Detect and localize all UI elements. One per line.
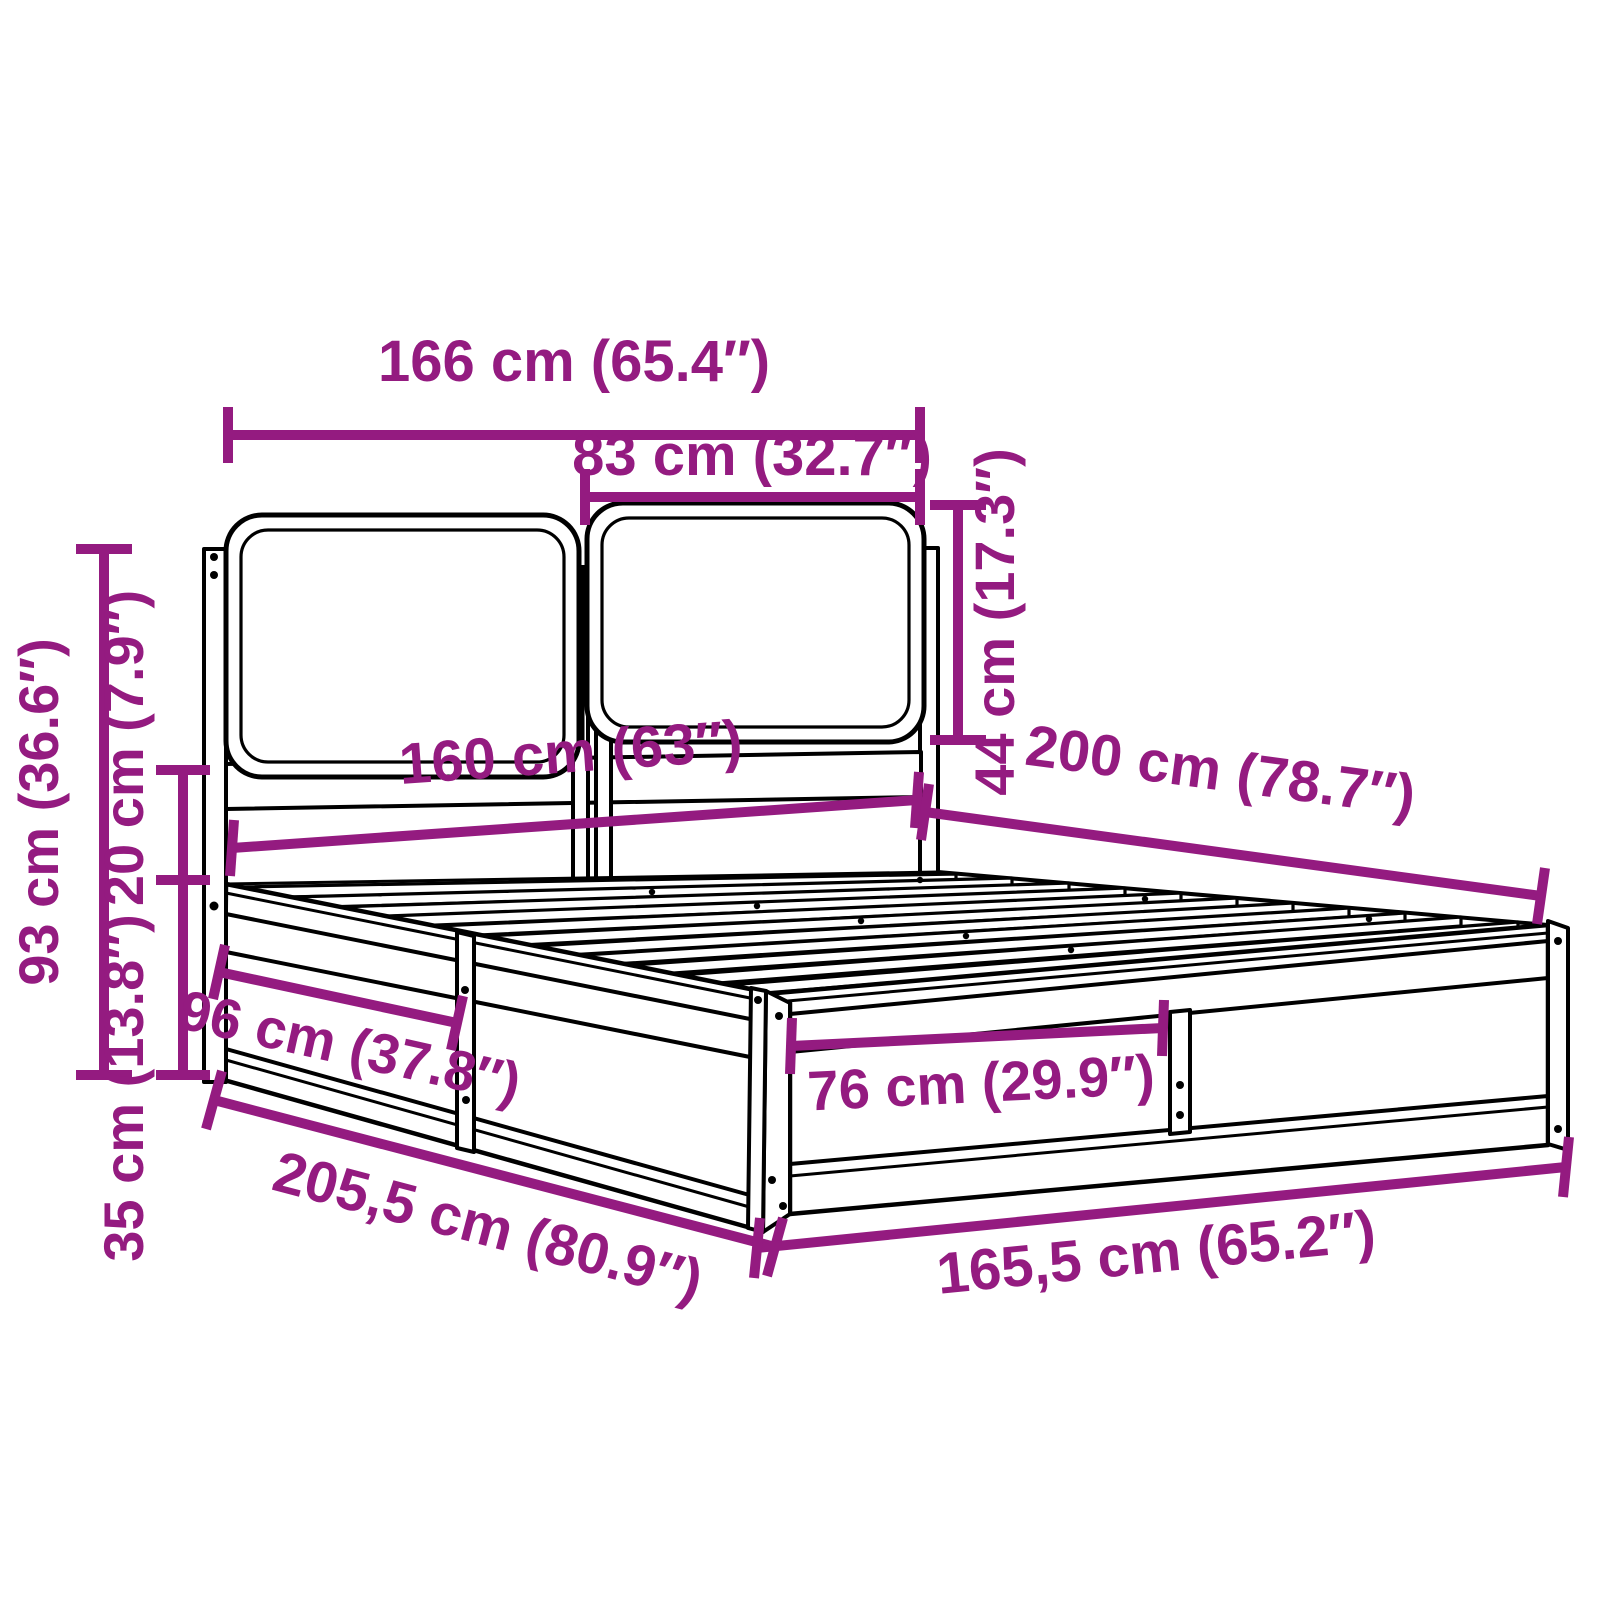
dim-headboard-width-label: 166 cm (65.4″) bbox=[378, 329, 770, 394]
diagram-canvas: 166 cm (65.4″) 83 cm (32.7″) 44 cm (17.3… bbox=[0, 0, 1600, 1600]
dim-base-height-label: 35 cm (13.8″) bbox=[92, 914, 155, 1261]
headboard-cushion-right bbox=[587, 503, 924, 742]
dim-cushion-height-label: 44 cm (17.3″) bbox=[963, 448, 1026, 795]
dim-headboard-height-label: 93 cm (36.6″) bbox=[7, 638, 70, 985]
dim-headboard-clearance-label: 20 cm (7.9″) bbox=[92, 590, 155, 906]
dim-frame-width-tick-left bbox=[754, 1218, 760, 1278]
dim-base-height: 35 cm (13.8″) bbox=[92, 880, 210, 1262]
dim-mattress-width-tick-left bbox=[230, 820, 234, 876]
dim-mattress-width-tick-right bbox=[915, 772, 919, 828]
corner-post bbox=[748, 988, 790, 1232]
bed-dimension-diagram: 166 cm (65.4″) 83 cm (32.7″) 44 cm (17.3… bbox=[0, 0, 1600, 1600]
dim-foot-section-tick-left bbox=[790, 1018, 792, 1074]
dim-cushion-width-label: 83 cm (32.7″) bbox=[572, 423, 932, 488]
dim-mattress-length-tick-right bbox=[1537, 868, 1545, 924]
dim-frame-width-tick-right bbox=[1563, 1137, 1569, 1197]
dim-foot-section-tick-right bbox=[1162, 1000, 1164, 1056]
dim-headboard-clearance: 20 cm (7.9″) bbox=[92, 590, 210, 906]
dim-frame-width-label: 165,5 cm (65.2″) bbox=[934, 1198, 1379, 1306]
dim-mattress-length-label: 200 cm (78.7″) bbox=[1022, 713, 1419, 829]
rear-right-leg bbox=[1548, 921, 1568, 1150]
dim-cushion-height: 44 cm (17.3″) bbox=[930, 448, 1026, 795]
